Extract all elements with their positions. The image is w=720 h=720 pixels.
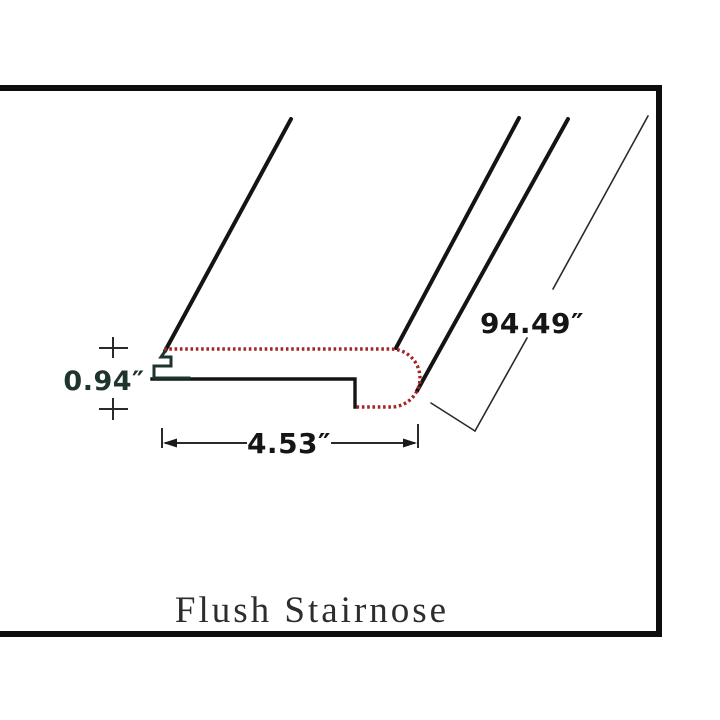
length-dim-line-upper: [553, 116, 648, 289]
thickness-dimension: 0.94″: [63, 337, 144, 420]
drawing-frame: [0, 88, 659, 634]
profile-tongue-notch: [154, 350, 189, 378]
width-label: 4.53″: [247, 427, 331, 460]
width-arrow-left: [163, 439, 177, 448]
length-leader-tick: [431, 403, 475, 431]
plank-front-bottom-edge-line: [417, 119, 568, 391]
width-dimension: 4.53″: [162, 424, 418, 460]
profile-cross-section: [152, 349, 420, 407]
length-label: 94.49″: [480, 307, 584, 340]
flush-stairnose-diagram: 0.94″ 4.53″ 94.49″ Flush Stairnose: [0, 0, 720, 720]
length-dim-line-lower: [475, 338, 527, 431]
thickness-label: 0.94″: [63, 366, 144, 397]
profile-body-outline: [152, 379, 355, 407]
length-dimension: 94.49″: [431, 116, 648, 431]
width-arrow-right: [403, 439, 417, 448]
diagram-canvas: 0.94″ 4.53″ 94.49″ Flush Stairnose: [0, 0, 720, 720]
plank-left-edge-line: [165, 119, 291, 351]
diagram-title: Flush Stairnose: [175, 590, 449, 631]
